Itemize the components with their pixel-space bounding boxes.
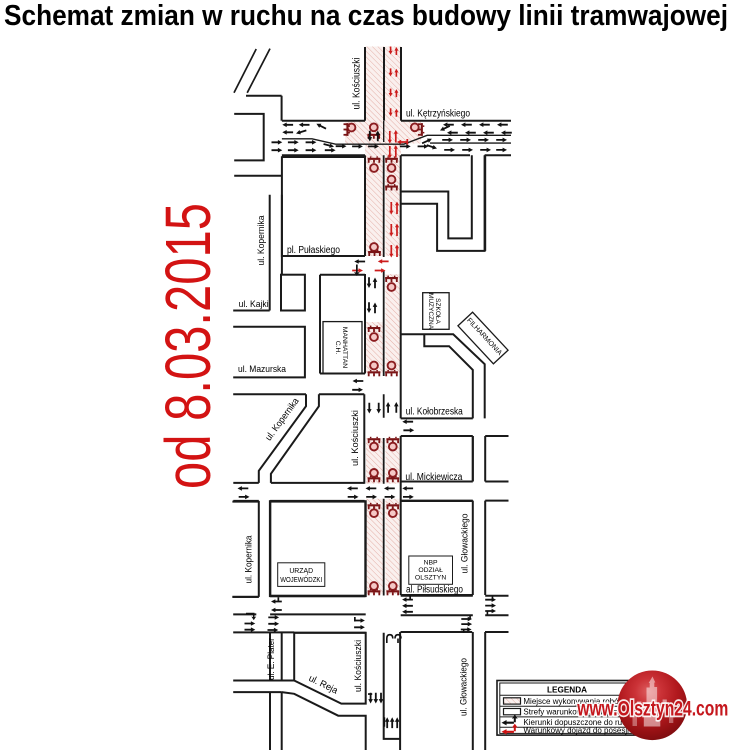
svg-text:Warunkowy dojazd do posesji: Warunkowy dojazd do posesji [523, 726, 629, 735]
svg-text:ul. Kopernika: ul. Kopernika [256, 215, 267, 266]
svg-text:al. Piłsudskiego: al. Piłsudskiego [406, 585, 463, 596]
svg-text:ul. Mazurska: ul. Mazurska [238, 364, 287, 375]
svg-text:OLSZTYN: OLSZTYN [415, 575, 446, 582]
svg-text:ul. E. Plater: ul. E. Plater [266, 638, 277, 680]
svg-text:ul. Kościuszki: ul. Kościuszki [352, 58, 363, 110]
svg-text:pl. Pułaskiego: pl. Pułaskiego [287, 245, 340, 256]
svg-text:ul. Kościuszki: ul. Kościuszki [350, 410, 361, 466]
svg-text:ul. Kopernika: ul. Kopernika [244, 535, 255, 584]
svg-text:ul. Kętrzyńskiego: ul. Kętrzyńskiego [406, 109, 470, 120]
svg-text:URZĄD: URZĄD [289, 568, 313, 575]
svg-text:ul. Mickiewicza: ul. Mickiewicza [405, 472, 462, 483]
svg-text:ODZIAŁ: ODZIAŁ [418, 567, 443, 574]
svg-text:SZKOŁA: SZKOŁA [434, 298, 441, 324]
svg-text:C.H.: C.H. [334, 341, 341, 355]
svg-text:MUZYCZNA: MUZYCZNA [427, 293, 434, 330]
svg-text:od 8.03.2015: od 8.03.2015 [152, 203, 224, 489]
svg-text:WOJEWÓDZKI: WOJEWÓDZKI [280, 575, 322, 584]
svg-text:ul. Kajki: ul. Kajki [239, 299, 269, 310]
svg-text:ul. Kościuszki: ul. Kościuszki [353, 640, 364, 692]
svg-text:NBP: NBP [424, 560, 438, 567]
svg-text:www.Olsztyn24.com: www.Olsztyn24.com [577, 697, 729, 721]
svg-text:LEGENDA: LEGENDA [547, 686, 587, 695]
svg-text:Schemat zmian w ruchu na czas: Schemat zmian w ruchu na czas budowy lin… [4, 0, 728, 32]
svg-text:ul. Kołobrzeska: ul. Kołobrzeska [406, 407, 463, 418]
svg-text:ul. Głowackiego: ul. Głowackiego [459, 658, 470, 716]
svg-text:ul. Głowackiego: ul. Głowackiego [460, 514, 471, 574]
svg-text:MANHATTAN: MANHATTAN [341, 327, 348, 368]
